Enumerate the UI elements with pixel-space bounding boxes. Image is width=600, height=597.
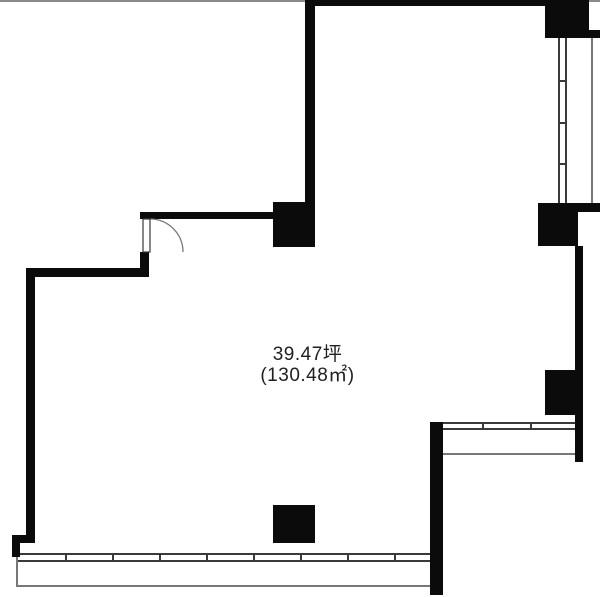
door-swing-arc [150, 219, 183, 252]
floor-plan: 39.47坪 (130.48㎡) [0, 0, 600, 597]
door-leaf [143, 219, 150, 252]
entry-door [0, 0, 600, 597]
